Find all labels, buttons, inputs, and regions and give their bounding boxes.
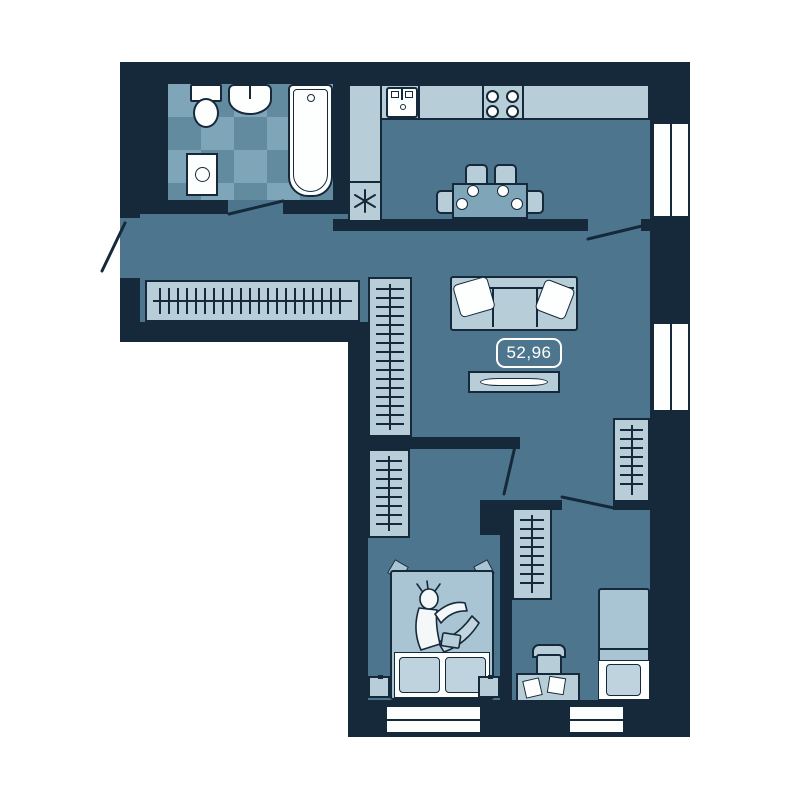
window-pane-divider — [670, 124, 672, 216]
refrigerator-star-symbol — [352, 188, 378, 214]
wardrobe-rail — [389, 284, 391, 430]
area-value: 52,96 — [506, 343, 551, 363]
bathtub — [288, 84, 333, 197]
stove-burner — [486, 105, 499, 118]
hallway-coat-closet — [145, 280, 360, 322]
window-right-lower — [652, 322, 690, 412]
floor-entrance-opening — [120, 218, 140, 278]
kitchen-sink-tap-left — [391, 91, 399, 98]
window-pane-divider — [670, 324, 672, 410]
washing-machine-door — [195, 167, 210, 182]
wall-left-above-entrance — [120, 203, 140, 218]
plate — [467, 185, 479, 197]
plate — [497, 185, 509, 197]
plate — [456, 198, 468, 210]
counter-divider-3 — [522, 84, 524, 120]
bedroom-right-wardrobe — [512, 508, 552, 600]
nightstand-handle — [488, 675, 493, 679]
wall-bathroom-kitchen-divider — [333, 84, 348, 214]
stove-burner — [486, 90, 499, 103]
window-right-upper — [652, 122, 690, 218]
wall-hallway-bottom — [120, 322, 368, 342]
nightstand-right — [478, 676, 500, 698]
wardrobe-rail — [631, 425, 633, 495]
kitchen-sink-spout — [401, 87, 403, 100]
wardrobe-rail — [531, 515, 533, 593]
wall-bedroom-left-top — [348, 437, 520, 449]
nightstand-handle — [378, 675, 383, 679]
dining-chair-right — [526, 190, 544, 214]
washing-machine — [186, 153, 218, 196]
wardrobe-rail — [388, 456, 390, 531]
wall-bathroom-bottom-left — [140, 200, 228, 214]
kitchen-sink-tap-right — [405, 91, 413, 98]
living-wardrobe — [368, 277, 412, 437]
nightstand-left — [368, 676, 390, 698]
plate — [511, 198, 523, 210]
window-pane-divider — [570, 719, 623, 721]
counter-divider-1 — [418, 84, 420, 120]
kitchen-sink — [386, 87, 418, 118]
floor-plan: 52,96 — [0, 0, 800, 800]
bathtub-inner-rim — [293, 89, 328, 192]
single-bed-blanket — [598, 588, 650, 664]
bedroom-left-wardrobe — [368, 449, 410, 538]
closet-rail — [153, 300, 352, 302]
toilet-bowl — [193, 98, 219, 128]
single-bed-footer — [598, 660, 650, 700]
corner-wardrobe — [613, 418, 650, 502]
single-bed-fold-line — [600, 648, 648, 650]
wall-top — [120, 62, 690, 84]
wall-kitchen-door-stub — [641, 219, 650, 231]
bathtub-drain — [307, 94, 315, 102]
window-pane-divider — [387, 719, 480, 721]
tv-console — [468, 371, 560, 393]
stove-burner — [506, 90, 519, 103]
paper-sheet — [547, 676, 566, 695]
wash-basin-tap — [249, 84, 251, 99]
wall-left-bathroom — [120, 62, 168, 203]
single-bed-pillow — [606, 664, 641, 696]
person-on-bed — [392, 572, 492, 668]
wall-lower-left — [348, 342, 368, 702]
window-bottom-right — [568, 705, 625, 734]
area-label: 52,96 — [496, 338, 562, 368]
paper-sheet — [522, 677, 543, 698]
kitchen-counter-left-divider — [348, 181, 382, 183]
counter-divider-2 — [482, 84, 484, 120]
stove-burner — [506, 105, 519, 118]
tv-screen — [480, 378, 548, 386]
kitchen-sink-drain — [400, 104, 406, 110]
window-bottom-left — [385, 705, 482, 734]
